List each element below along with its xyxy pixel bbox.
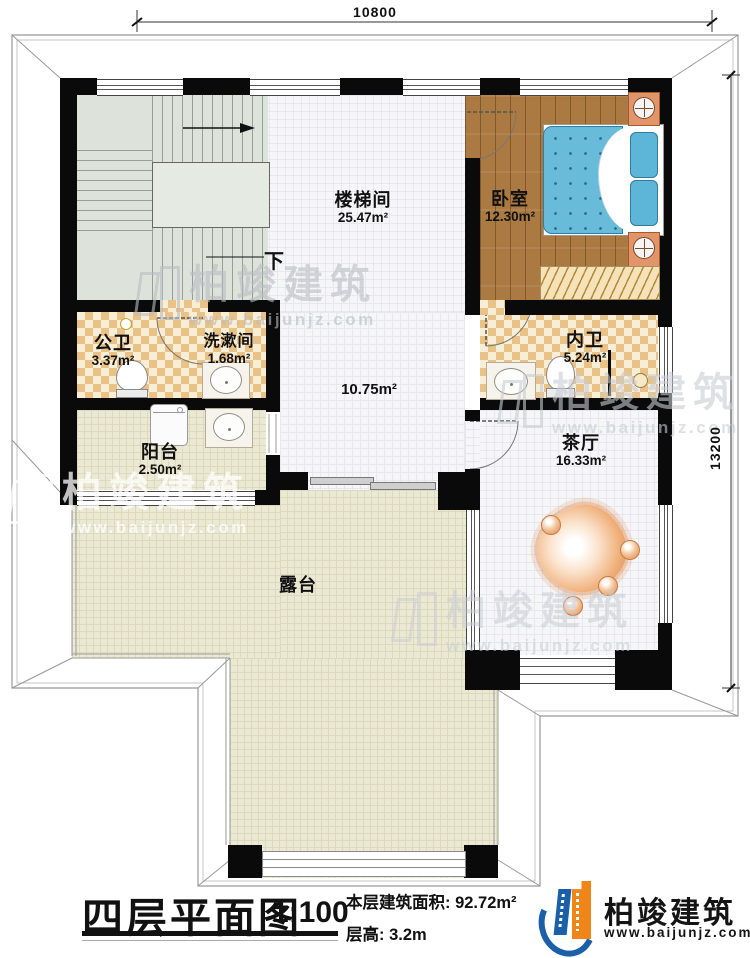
wall-segment [658,315,672,327]
wall-tea-right [658,410,672,505]
wall-segment [60,300,160,312]
bath-door-opening [160,300,208,312]
ceiling-lamp-icon [120,318,132,330]
bed-pillow [630,132,658,178]
stool [541,515,561,535]
wall-bedroom-left [465,158,480,315]
wall-segment [60,490,77,505]
wall-bedroom-bottom [505,300,658,315]
window [520,658,615,684]
terrace-column [464,845,498,878]
window [659,327,673,393]
wall-segment [615,650,672,690]
sliding-door-panel [370,482,436,490]
window [250,79,340,96]
stair-down-label: 下 [264,245,284,274]
window [403,79,480,96]
wall-segment [465,410,480,421]
sliding-door-panel [310,477,374,485]
room-label-terrace: 露台 [258,575,338,595]
window [659,505,673,623]
wall-segment [280,472,308,490]
wall-segment [60,78,97,95]
window [520,79,628,96]
shower-head-icon [633,373,648,388]
room-label-inner-bath: 内卫 5.24m² [545,330,625,365]
toilet-base [116,389,148,398]
brand-website: www.baijunjz.com [604,925,750,940]
sink [213,413,245,441]
brand-logo-icon [541,881,599,951]
dimension-top: 10800 [330,4,420,20]
dimension-right: 13200 [707,426,723,470]
room-label-bedroom: 卧室 12.30m² [470,189,550,224]
floor-area-text: 本层建筑面积: 92.72m² [346,889,517,913]
lamp-icon [633,97,655,119]
lamp-icon [633,237,655,259]
wall-segment [183,78,250,95]
brand-building-orange [572,881,591,939]
washing-machine [150,404,188,446]
toilet-base [546,388,575,398]
title-underline [82,931,338,936]
room-label-staircase: 楼梯间 25.47m² [318,190,408,225]
wall-segment [255,490,280,505]
inner-bath-door-opening [480,300,505,315]
stool [563,596,583,616]
stool [620,540,640,560]
room-label-balcony: 阳台 2.50m² [120,442,200,477]
floor-height-text: 层高: 3.2m [346,921,427,945]
nightstand [628,232,660,267]
wardrobe [540,266,660,300]
terrace-railing [262,851,466,877]
window [466,510,480,650]
wall-segment [438,472,480,510]
nightstand [628,92,660,126]
room-label-washroom: 洗漱间 1.68m² [189,333,269,366]
room-label-public-bath: 公卫 3.37m² [73,333,153,368]
wall-segment [465,650,520,690]
terrace-column [228,845,262,878]
title-underline-thin [82,940,338,941]
floor-plan-canvas: 柏竣建筑 www.baijunjz.com 柏竣建筑 www.baijunjz.… [0,0,750,958]
stool [598,576,618,596]
wall-segment [340,78,403,95]
room-label-tea-hall: 茶厅 16.33m² [541,433,621,468]
wall-segment [658,393,672,410]
plan-scale: 1:100 [272,896,349,930]
sink [494,368,528,395]
sink [210,366,242,394]
bed-pillow [630,180,658,226]
balcony-window [77,491,255,506]
wall-segment [480,78,520,95]
window [97,79,183,96]
room-label-hall-area: 10.75m² [329,382,409,399]
